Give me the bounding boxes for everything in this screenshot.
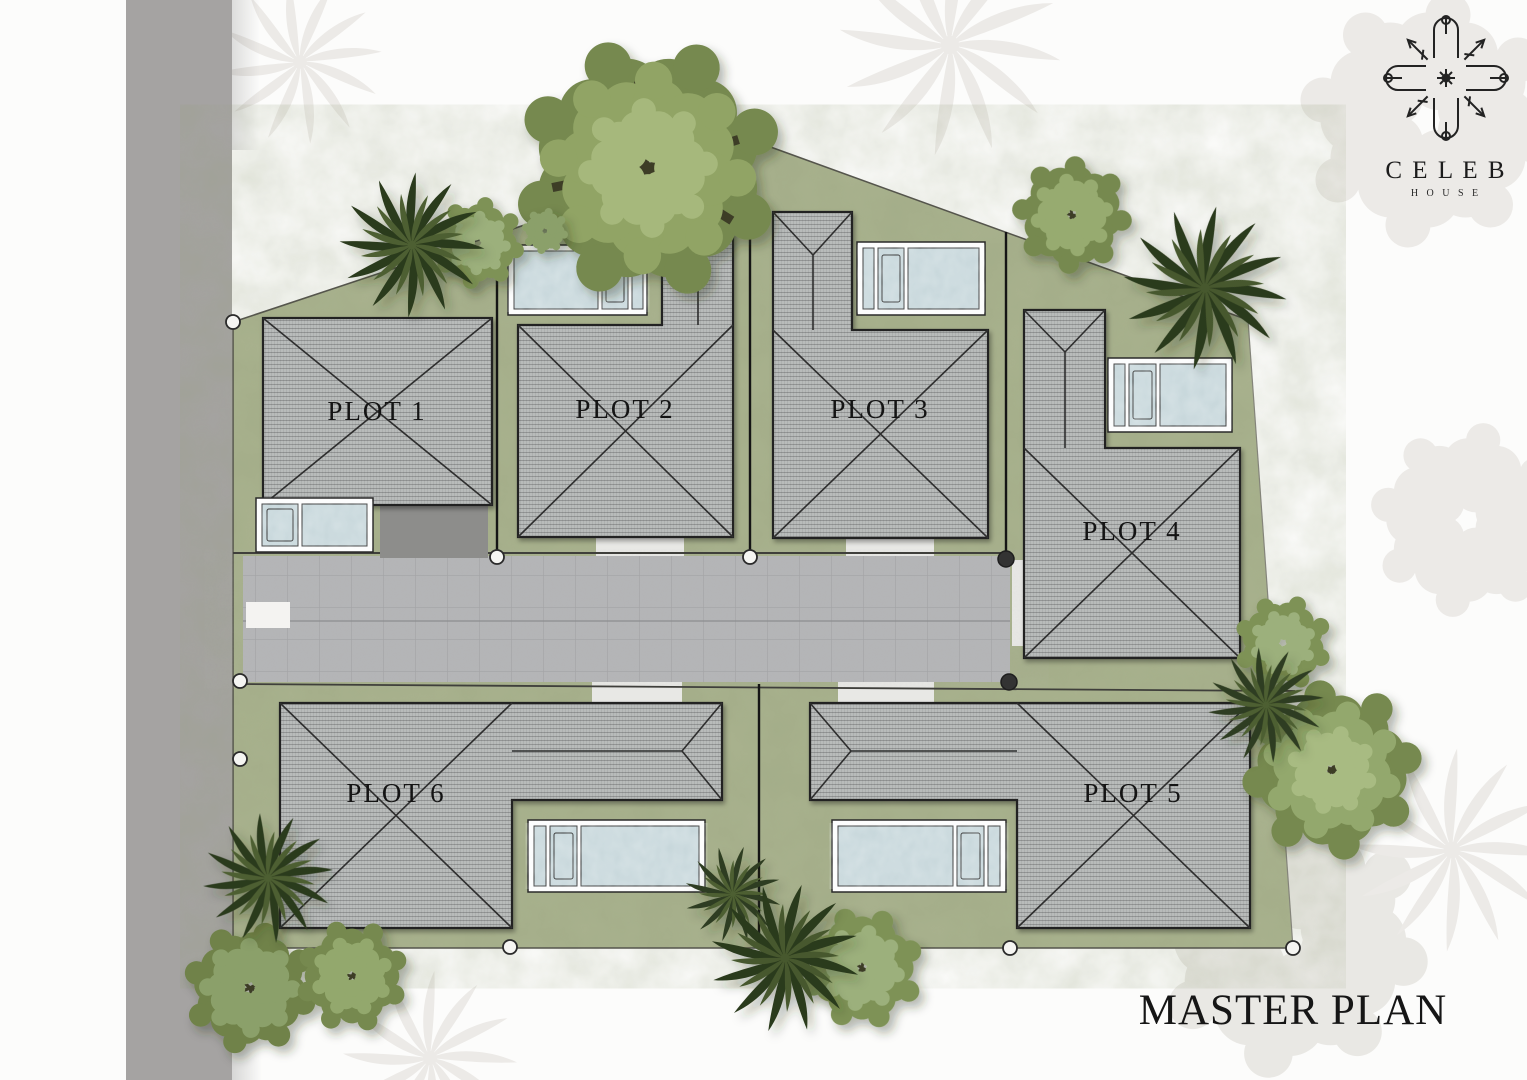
plot-2-label: PLOT 2 (575, 394, 674, 424)
plan-title: MASTER PLAN (1128, 986, 1458, 1035)
plot-1-terrace (380, 502, 488, 558)
plot-3-pool (857, 242, 985, 315)
plot-4-label: PLOT 4 (1082, 516, 1181, 546)
plot-5-pool (832, 820, 1006, 892)
plot-4-pool (1108, 358, 1232, 432)
brand-logo: C E L E B H O U S E (1346, 8, 1527, 199)
brand-subname: H O U S E (1346, 188, 1527, 199)
plot-5-label: PLOT 5 (1083, 778, 1182, 808)
master-plan-drawing: PLOT 1 PLOT 2 PLOT 3 PLOT 4 PLOT 5 PLOT … (0, 0, 1527, 1080)
plot-6-pool (528, 820, 705, 892)
plot-1-label: PLOT 1 (327, 396, 426, 426)
celeb-house-emblem-icon (1371, 8, 1521, 148)
plot-1-pool (256, 498, 373, 552)
master-plan-page: PLOT 1 PLOT 2 PLOT 3 PLOT 4 PLOT 5 PLOT … (0, 0, 1527, 1080)
plot-6-label: PLOT 6 (346, 778, 445, 808)
brand-name: C E L E B (1346, 157, 1527, 185)
plot-3-label: PLOT 3 (830, 394, 929, 424)
road-entry-marker (246, 602, 290, 628)
